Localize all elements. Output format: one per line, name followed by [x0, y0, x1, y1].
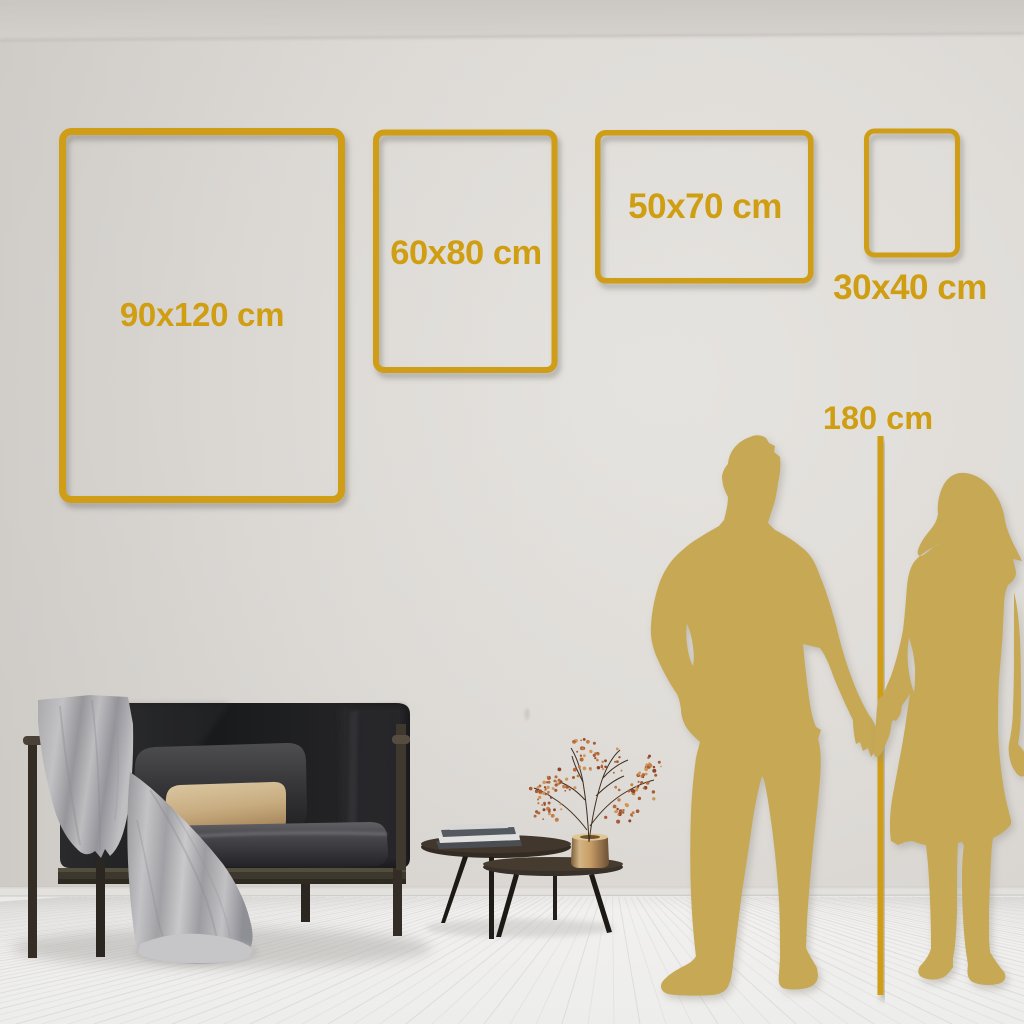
svg-text:90x120 cm: 90x120 cm: [120, 296, 284, 333]
svg-text:50x70 cm: 50x70 cm: [628, 187, 782, 226]
svg-text:180 cm: 180 cm: [823, 400, 933, 436]
svg-text:30x40 cm: 30x40 cm: [833, 268, 987, 307]
svg-text:60x80 cm: 60x80 cm: [390, 234, 541, 272]
